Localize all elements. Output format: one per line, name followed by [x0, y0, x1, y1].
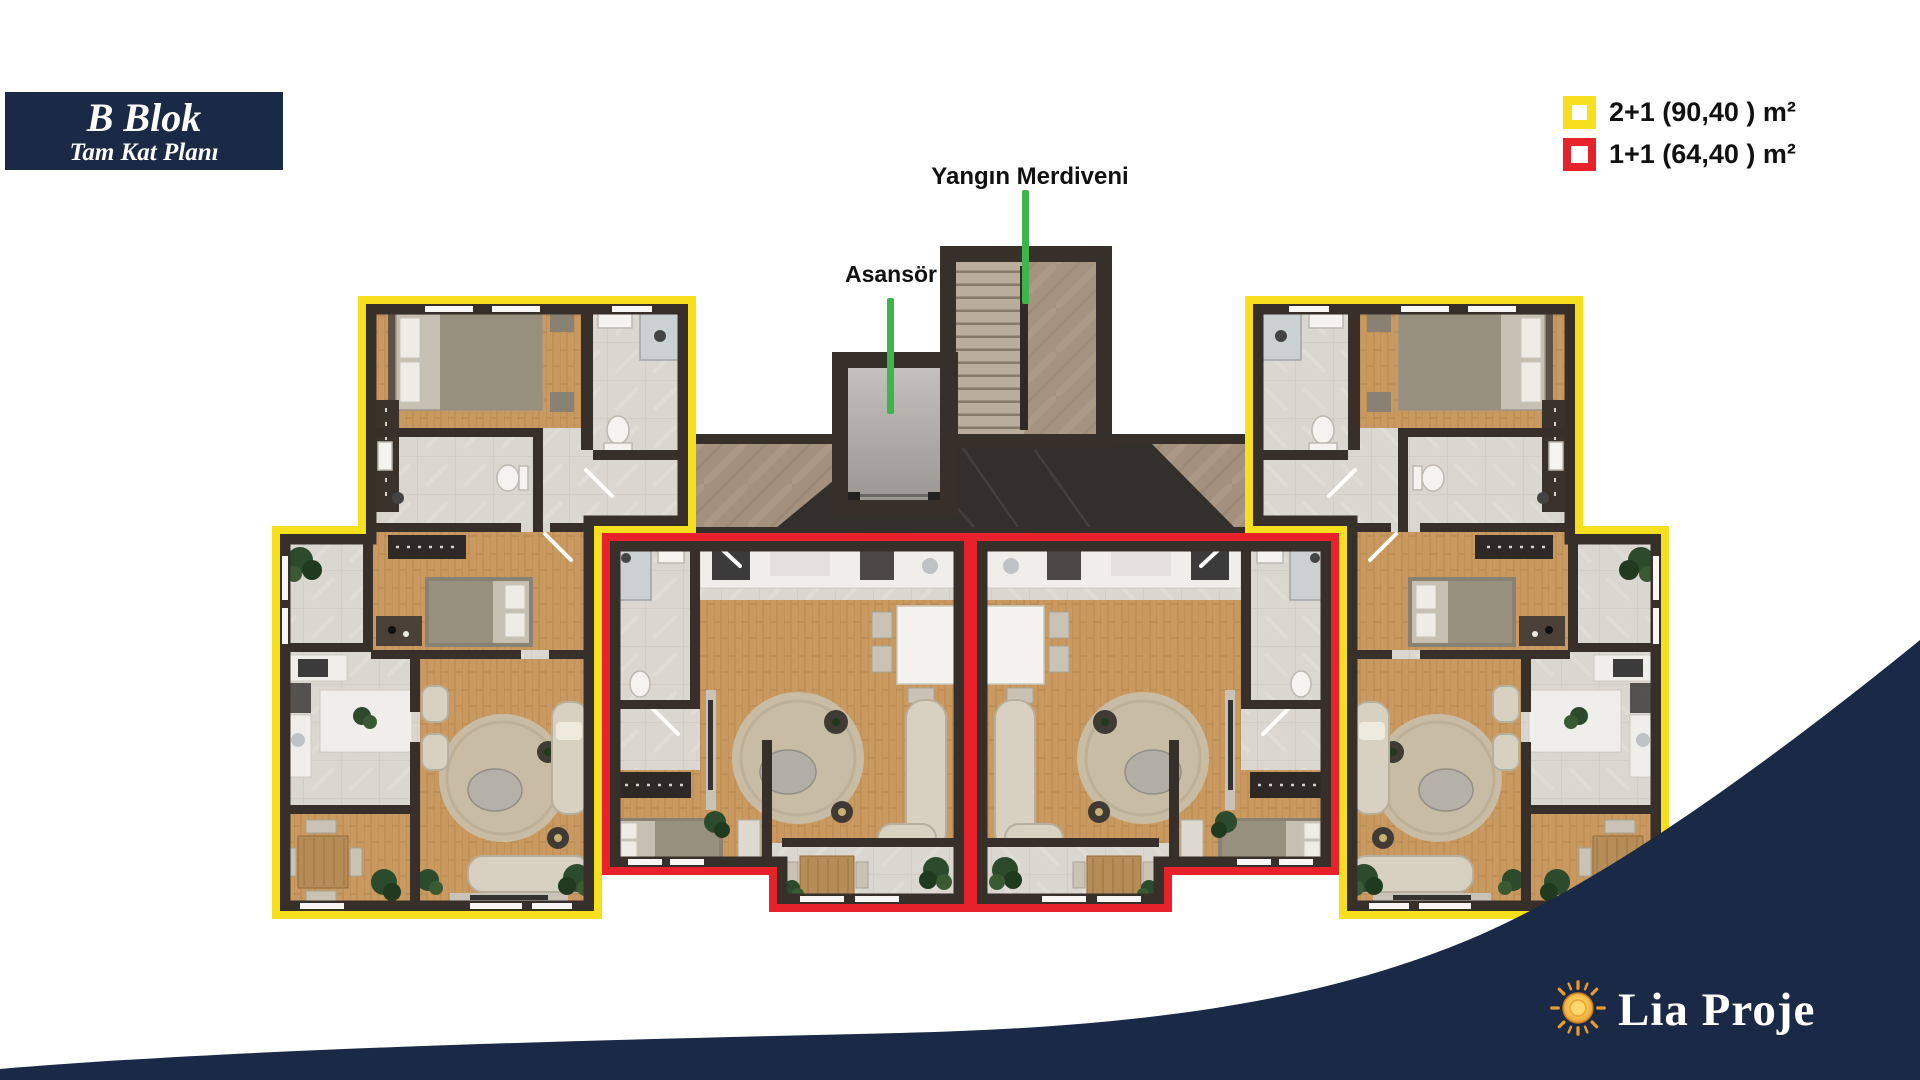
legend: 2+1 (90,40 ) m² 1+1 (64,40 ) m²	[1563, 96, 1796, 171]
apartment-1plus1-right	[973, 537, 1335, 908]
single-bed	[425, 577, 533, 647]
legend-swatch-1plus1	[1563, 138, 1596, 171]
common-core	[598, 246, 1343, 561]
legend-label: 2+1 (90,40 ) m²	[1609, 99, 1796, 126]
title-box: B Blok Tam Kat Planı	[5, 92, 283, 170]
apartment-1plus1-left	[606, 537, 968, 908]
elevator-pointer-line	[887, 298, 894, 414]
desk	[376, 616, 422, 646]
brand-name: Lia Proje	[1618, 983, 1815, 1037]
brand-logo: Lia Proje	[1548, 970, 1908, 1050]
double-bed	[615, 818, 760, 862]
floor-plan-poster: B Blok Tam Kat Planı 2+1 (90,40 ) m² 1+1…	[0, 0, 1920, 1080]
hanger-wardrobe	[388, 535, 466, 559]
legend-item-1plus1: 1+1 (64,40 ) m²	[1563, 138, 1796, 171]
fire-escape-pointer-line	[1022, 190, 1029, 304]
plan-subtitle: Tam Kat Planı	[5, 140, 283, 165]
legend-label: 1+1 (64,40 ) m²	[1609, 141, 1796, 168]
legend-swatch-2plus1	[1563, 96, 1596, 129]
elevator-shaft	[832, 352, 958, 518]
elevator-label: Asansör	[806, 261, 976, 288]
hanger-wardrobe	[617, 772, 691, 798]
sun-icon	[1548, 978, 1608, 1043]
block-title: B Blok	[5, 98, 283, 138]
legend-item-2plus1: 2+1 (90,40 ) m²	[1563, 96, 1796, 129]
fire-escape-label: Yangın Merdiveni	[884, 163, 1176, 191]
